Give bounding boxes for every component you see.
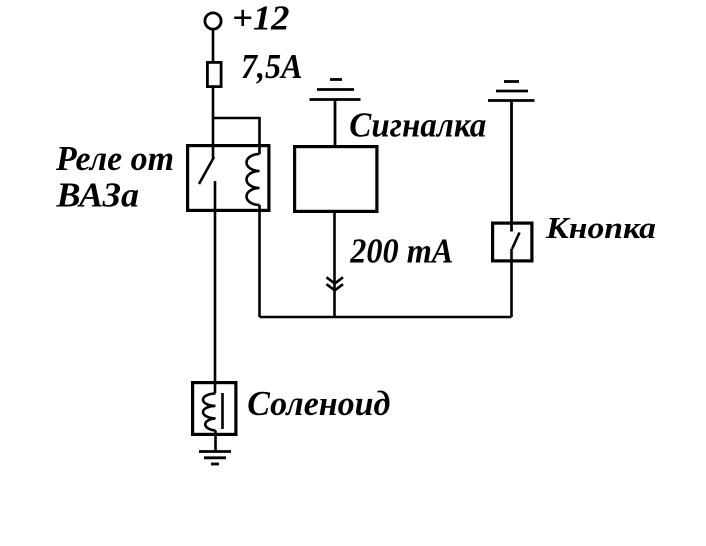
svg-text:+12: +12 xyxy=(232,0,290,38)
svg-text:Соленоид: Соленоид xyxy=(247,384,390,423)
svg-text:200 mА: 200 mА xyxy=(349,232,453,271)
svg-text:Сигналка: Сигналка xyxy=(349,106,486,145)
svg-text:7,5А: 7,5А xyxy=(241,47,303,86)
svg-text:Реле от: Реле от xyxy=(55,139,174,178)
svg-text:ВАЗа: ВАЗа xyxy=(55,175,139,214)
svg-text:Кнопка: Кнопка xyxy=(545,210,656,245)
